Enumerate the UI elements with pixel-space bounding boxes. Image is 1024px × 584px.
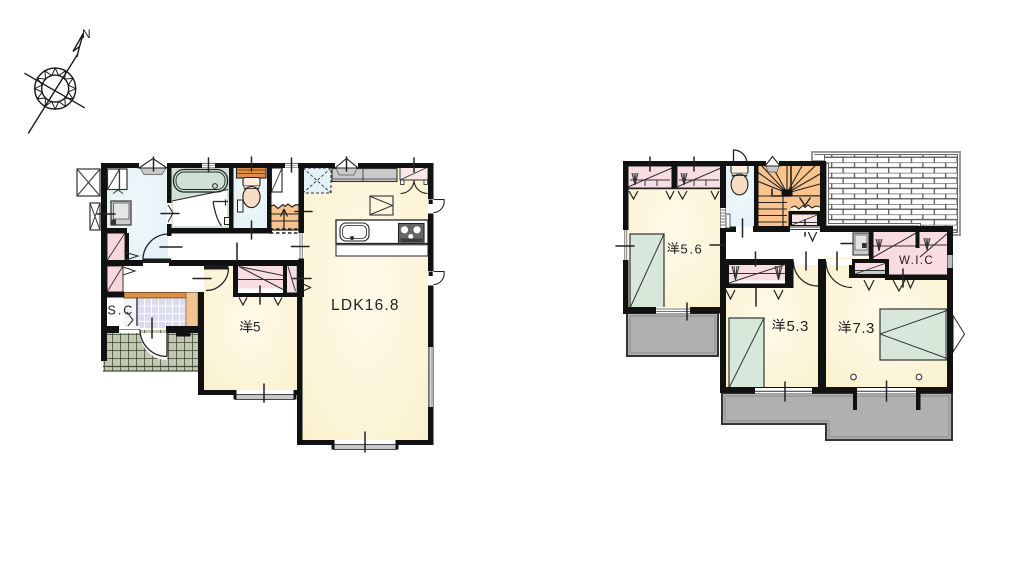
svg-text:7.3: 7.3 [853, 320, 875, 337]
svg-text:W.I.C: W.I.C [899, 255, 934, 267]
svg-text:LDK16.8: LDK16.8 [331, 297, 400, 314]
svg-text:S.C: S.C [108, 304, 135, 318]
svg-text:5.6: 5.6 [681, 242, 704, 257]
svg-text:5.3: 5.3 [787, 318, 809, 335]
svg-text:N: N [82, 27, 91, 41]
svg-text:5: 5 [253, 320, 261, 335]
